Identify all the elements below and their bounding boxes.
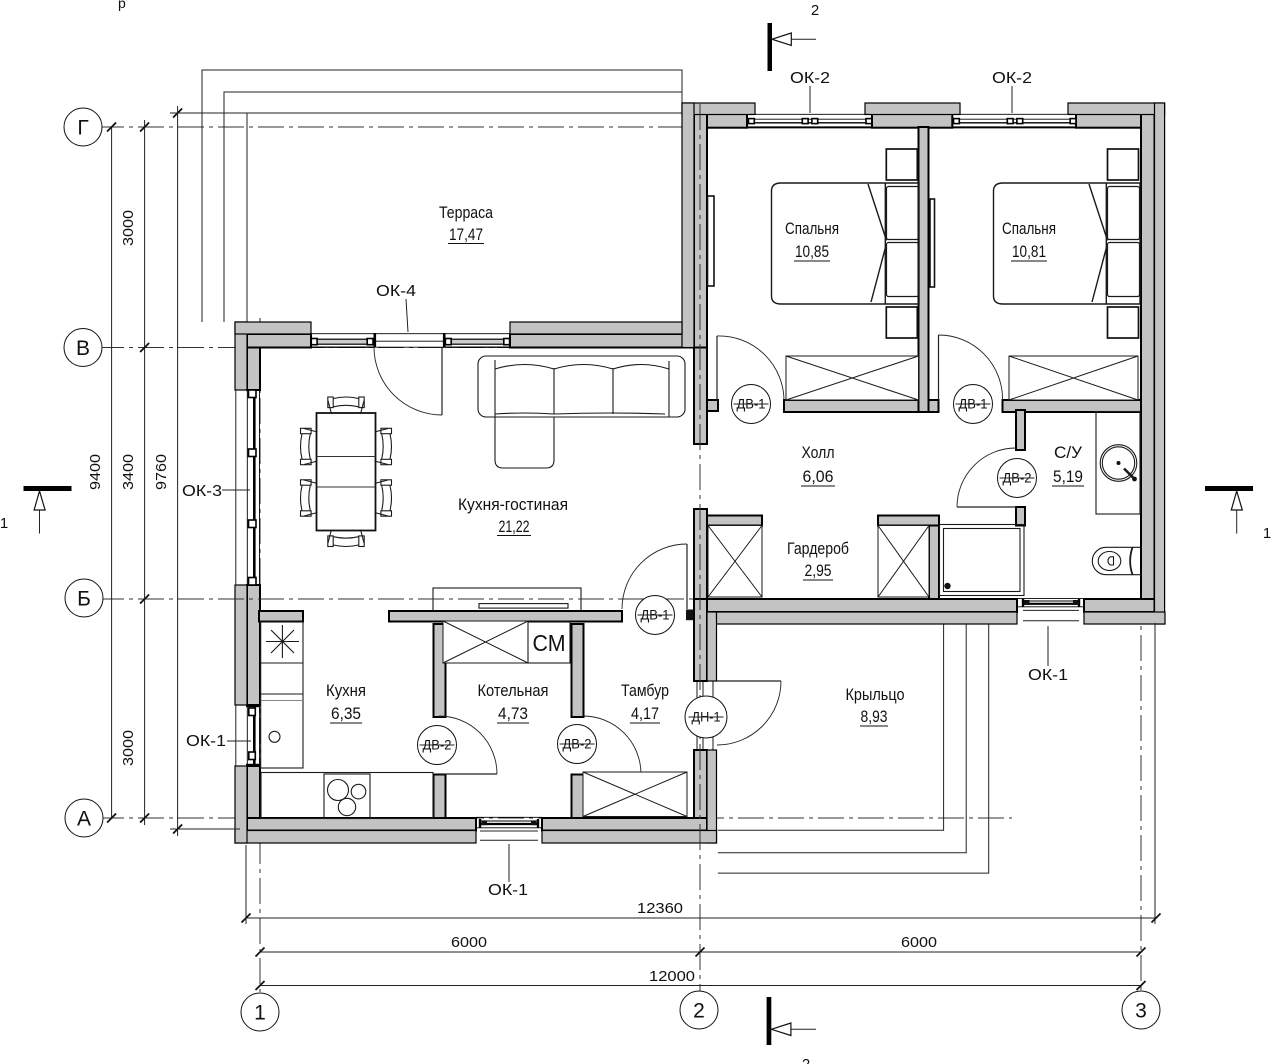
svg-text:Спальня: Спальня — [1002, 219, 1056, 238]
svg-text:4,73: 4,73 — [498, 705, 528, 723]
svg-text:5,19: 5,19 — [1053, 468, 1083, 486]
svg-text:ОК-4: ОК-4 — [376, 283, 416, 300]
svg-text:6000: 6000 — [901, 934, 937, 951]
svg-text:9400: 9400 — [87, 454, 104, 490]
svg-text:2,95: 2,95 — [805, 562, 832, 580]
svg-text:Спальня: Спальня — [785, 219, 839, 238]
svg-text:Кухня-гостиная: Кухня-гостиная — [458, 495, 568, 514]
svg-text:10,85: 10,85 — [795, 243, 829, 261]
svg-text:Гардероб: Гардероб — [787, 539, 849, 558]
svg-text:Г: Г — [77, 117, 88, 140]
svg-text:10,81: 10,81 — [1012, 243, 1046, 261]
svg-text:ОК-1: ОК-1 — [488, 882, 528, 899]
svg-text:12360: 12360 — [637, 900, 683, 917]
svg-text:3000: 3000 — [120, 210, 137, 246]
svg-text:Б: Б — [77, 588, 91, 611]
svg-text:8,93: 8,93 — [861, 708, 888, 726]
svg-text:6,35: 6,35 — [331, 705, 361, 723]
svg-text:ОК-2: ОК-2 — [992, 70, 1032, 87]
svg-text:СМ: СМ — [533, 630, 566, 656]
svg-text:ОК-2: ОК-2 — [790, 70, 830, 87]
svg-text:1: 1 — [254, 1002, 266, 1025]
svg-text:6000: 6000 — [451, 934, 487, 951]
svg-text:Терраса: Терраса — [439, 203, 493, 222]
svg-text:2: 2 — [693, 1000, 705, 1023]
svg-text:Тамбур: Тамбур — [621, 681, 669, 700]
svg-text:1: 1 — [0, 515, 8, 532]
svg-text:С/У: С/У — [1054, 443, 1082, 462]
svg-text:12000: 12000 — [649, 968, 695, 985]
svg-text:Холл: Холл — [802, 443, 835, 462]
svg-text:3400: 3400 — [120, 454, 137, 490]
svg-text:2: 2 — [802, 1056, 810, 1064]
svg-text:1: 1 — [1263, 525, 1271, 542]
svg-text:Крыльцо: Крыльцо — [846, 685, 905, 704]
svg-text:3000: 3000 — [120, 730, 137, 766]
svg-text:17,47: 17,47 — [449, 226, 483, 244]
svg-text:В: В — [76, 337, 90, 360]
svg-text:21,22: 21,22 — [499, 518, 530, 536]
svg-text:Котельная: Котельная — [478, 681, 549, 700]
svg-text:ОК-1: ОК-1 — [1028, 667, 1068, 684]
svg-text:Кухня: Кухня — [326, 681, 366, 700]
svg-text:4,17: 4,17 — [631, 705, 659, 723]
svg-text:р: р — [118, 0, 126, 11]
svg-text:ОК-3: ОК-3 — [182, 483, 222, 500]
svg-text:ОК-1: ОК-1 — [186, 733, 226, 750]
svg-text:А: А — [77, 808, 91, 831]
svg-text:3: 3 — [1135, 1000, 1147, 1023]
svg-text:6,06: 6,06 — [803, 468, 834, 486]
svg-text:2: 2 — [811, 2, 819, 19]
svg-text:9760: 9760 — [153, 454, 170, 490]
